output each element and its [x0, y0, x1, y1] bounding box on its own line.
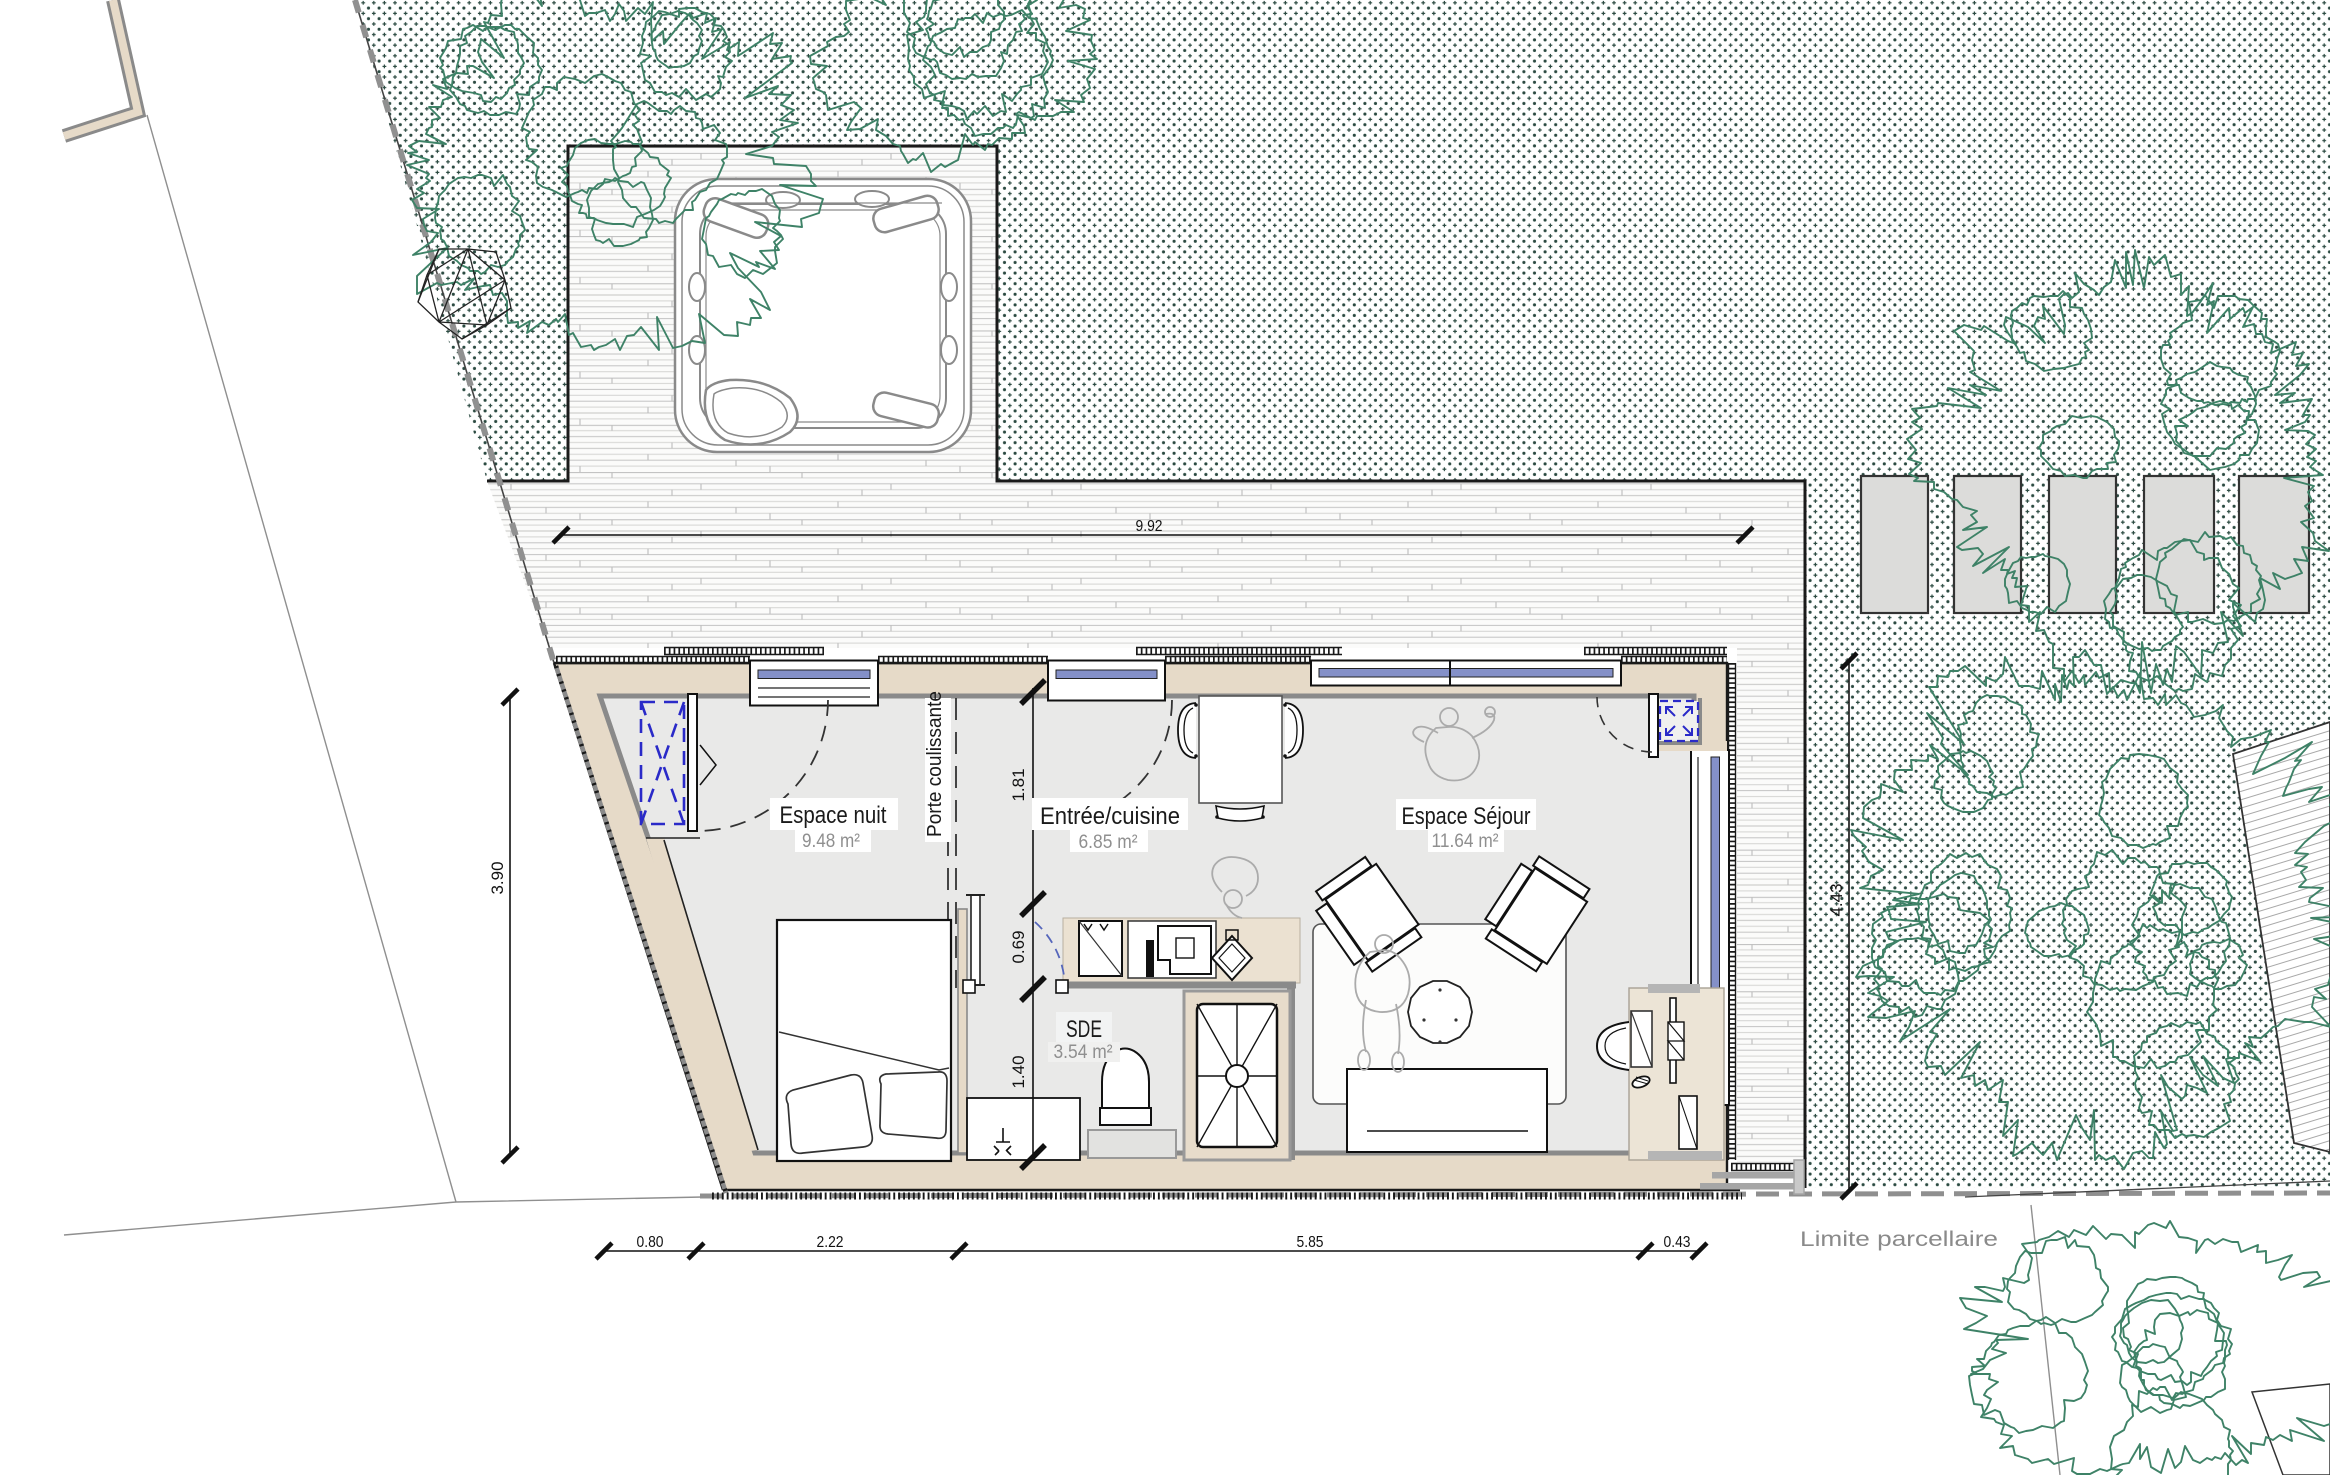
svg-text:Espace Séjour: Espace Séjour: [1402, 803, 1531, 830]
svg-text:5.85: 5.85: [1297, 1234, 1324, 1251]
svg-text:11.64 m²: 11.64 m²: [1432, 830, 1499, 852]
svg-text:Entrée/cuisine: Entrée/cuisine: [1040, 803, 1180, 830]
svg-text:9.92: 9.92: [1136, 518, 1163, 535]
svg-text:Espace nuit: Espace nuit: [780, 802, 887, 829]
svg-text:1.81: 1.81: [1009, 769, 1028, 802]
svg-text:SDE: SDE: [1066, 1016, 1102, 1043]
svg-text:3.54 m²: 3.54 m²: [1054, 1041, 1113, 1063]
svg-text:2.22: 2.22: [817, 1234, 844, 1251]
svg-text:4.43: 4.43: [1827, 884, 1846, 917]
svg-text:Limite parcellaire: Limite parcellaire: [1800, 1228, 1998, 1251]
svg-text:Porte coulissante: Porte coulissante: [924, 691, 946, 837]
svg-text:6.85 m²: 6.85 m²: [1079, 831, 1138, 853]
svg-text:0.43: 0.43: [1664, 1234, 1691, 1251]
svg-text:0.80: 0.80: [637, 1234, 664, 1251]
svg-text:3.90: 3.90: [488, 862, 507, 895]
svg-text:0.69: 0.69: [1009, 931, 1028, 964]
svg-text:9.48 m²: 9.48 m²: [802, 830, 860, 852]
svg-text:1.40: 1.40: [1009, 1056, 1028, 1089]
